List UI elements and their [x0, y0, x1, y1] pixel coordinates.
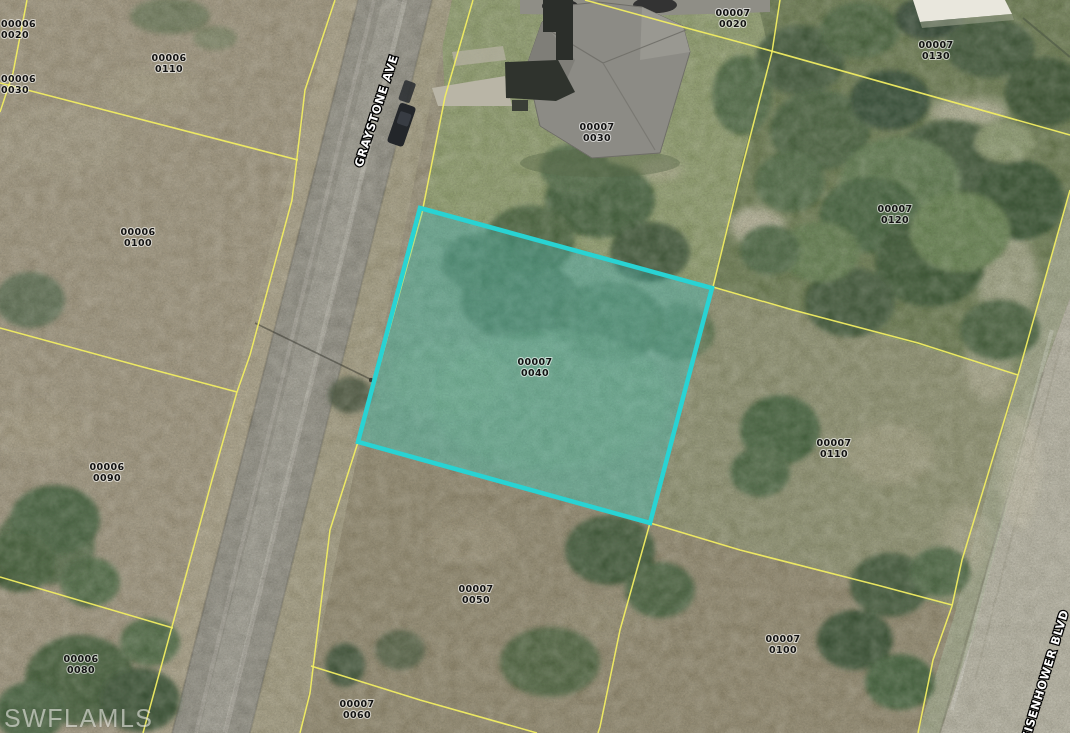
svg-text:00007: 00007	[765, 633, 800, 644]
svg-text:00007: 00007	[579, 121, 614, 132]
house-dark-roof-section	[543, 0, 573, 32]
parcel-label-00006-0110: 00006 0110	[151, 52, 186, 74]
svg-text:00006: 00006	[1, 73, 36, 84]
parcel-map-image: 00006 0020 00006 0030 00006 0110 00006 0…	[0, 0, 1070, 733]
svg-text:00006: 00006	[63, 653, 98, 664]
svg-text:0090: 0090	[93, 472, 121, 483]
svg-text:00007: 00007	[458, 583, 493, 594]
watermark: SWFLAMLS	[4, 704, 154, 732]
svg-text:0130: 0130	[922, 50, 950, 61]
parcel-label-00007-0130: 00007 0130	[918, 39, 953, 61]
svg-text:0050: 0050	[462, 594, 490, 605]
map-viewport: 00006 0020 00006 0030 00006 0110 00006 0…	[0, 0, 1070, 733]
svg-text:00007: 00007	[816, 437, 851, 448]
svg-text:00007: 00007	[339, 698, 374, 709]
svg-text:0030: 0030	[1, 84, 29, 95]
parcel-label-00007-0060: 00007 0060	[339, 698, 374, 720]
svg-text:0080: 0080	[67, 664, 95, 675]
svg-text:0110: 0110	[155, 63, 183, 74]
parcel-label-00007-0030: 00007 0030	[579, 121, 614, 143]
svg-text:0040: 0040	[521, 367, 549, 378]
svg-text:00007: 00007	[715, 7, 750, 18]
parcel-label-00006-0090: 00006 0090	[89, 461, 124, 483]
svg-text:00007: 00007	[517, 356, 552, 367]
parcel-label-00006-0100: 00006 0100	[120, 226, 155, 248]
parcel-label-00007-0120: 00007 0120	[877, 203, 912, 225]
svg-text:0020: 0020	[1, 29, 29, 40]
svg-text:00006: 00006	[151, 52, 186, 63]
svg-text:00006: 00006	[1, 18, 36, 29]
svg-text:0030: 0030	[583, 132, 611, 143]
parcel-label-00007-0110: 00007 0110	[816, 437, 851, 459]
parcel-label-00007-0100: 00007 0100	[765, 633, 800, 655]
svg-text:0060: 0060	[343, 709, 371, 720]
svg-text:0110: 0110	[820, 448, 848, 459]
svg-text:0020: 0020	[719, 18, 747, 29]
parcel-label-00006-0080: 00006 0080	[63, 653, 98, 675]
svg-text:00007: 00007	[877, 203, 912, 214]
parcel-label-00007-0050: 00007 0050	[458, 583, 493, 605]
svg-text:0100: 0100	[124, 237, 152, 248]
parcel-label-00007-0040: 00007 0040	[517, 356, 552, 378]
svg-text:0100: 0100	[769, 644, 797, 655]
svg-text:00007: 00007	[918, 39, 953, 50]
svg-text:00006: 00006	[89, 461, 124, 472]
svg-text:00006: 00006	[120, 226, 155, 237]
parcel-label-00007-0020: 00007 0020	[715, 7, 750, 29]
svg-text:0120: 0120	[881, 214, 909, 225]
